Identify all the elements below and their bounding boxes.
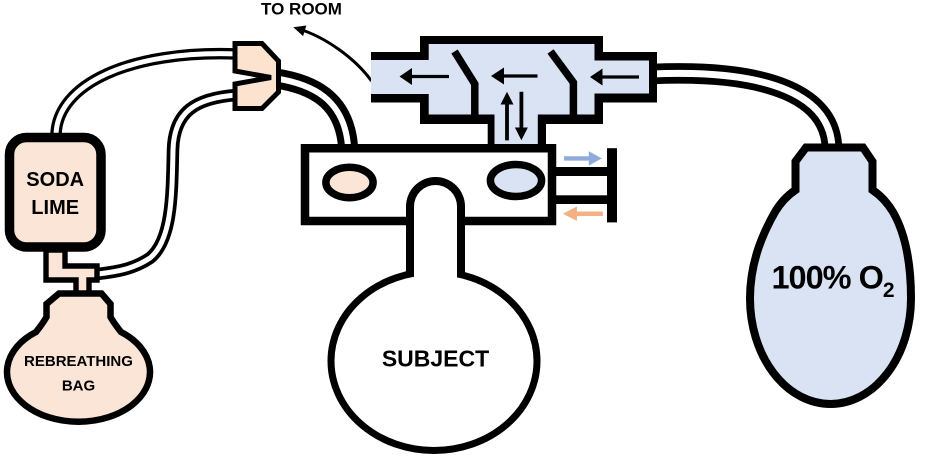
svg-text:LIME: LIME	[31, 197, 79, 219]
svg-text:BAG: BAG	[62, 378, 95, 395]
svg-text:SODA: SODA	[26, 169, 84, 191]
svg-text:SUBJECT: SUBJECT	[382, 346, 489, 372]
svg-text:REBREATHING: REBREATHING	[24, 353, 133, 370]
svg-text:TO ROOM: TO ROOM	[261, 0, 342, 19]
